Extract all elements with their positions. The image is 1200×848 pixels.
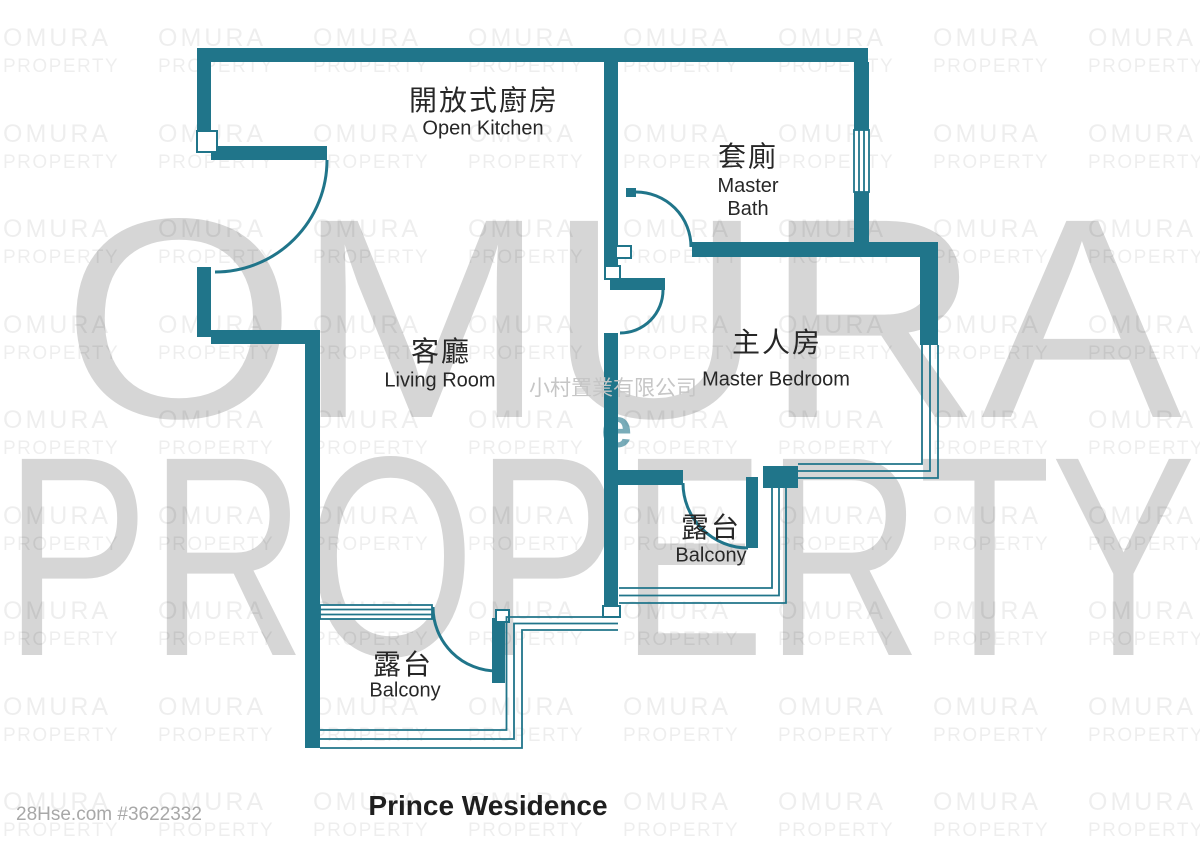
balcony-living-door-arc [433, 607, 497, 671]
living-room-label-cjk: 客廳 [411, 336, 471, 368]
floorplan-image: OMURAPROPERTYOMURAPROPERTYOMURAPROPERTYO… [0, 0, 1200, 848]
wall-entry-inner [211, 146, 327, 160]
listing-reference: 28Hse.com #3622332 [16, 804, 202, 826]
wall-bath-right-lower [854, 192, 869, 247]
hallway-jamb-1 [616, 246, 631, 258]
bath-door-arc [636, 192, 691, 247]
balcony-glass-line [320, 617, 618, 730]
wall-bath-door-stub [626, 188, 636, 197]
wall-left-upper [197, 48, 211, 134]
bath-window-frame [854, 130, 869, 192]
building-title: Prince Wesidence [368, 790, 607, 822]
bay-window-line [798, 345, 930, 471]
bedroom-door-arc [620, 290, 663, 333]
wall-balcony-bedroom-top [618, 470, 683, 485]
floorplan-drawing [0, 0, 1200, 848]
hallway-end-block [603, 606, 620, 617]
wall-bath-right-upper [854, 62, 869, 130]
wall-balcony-bedroom-stub [746, 477, 758, 548]
balcony-living-label-cjk: 露台 [373, 649, 433, 681]
kitchen-label-en: Open Kitchen [422, 118, 543, 141]
balcony-living-window-strip [320, 605, 432, 619]
balcony-bedroom-label-cjk: 露台 [681, 512, 741, 544]
wall-hallway-upper [604, 62, 618, 268]
balcony-bedroom-label-en: Balcony [675, 545, 746, 568]
bay-window-line [798, 345, 922, 464]
kitchen-label-cjk: 開放式廚房 [409, 85, 559, 117]
balcony-living-glass [320, 617, 618, 748]
bedroom-bay-window [798, 345, 938, 478]
wall-living-step [211, 330, 320, 344]
hallway-jamb-2 [605, 266, 620, 279]
wall-balcony-living-stub [492, 618, 505, 683]
balcony-glass-line [320, 624, 618, 740]
entry-door-hinge-block [197, 131, 217, 152]
wall-bedroom-right [920, 257, 938, 345]
bay-window-line [798, 345, 938, 478]
master-bedroom-label-cjk: 主人房 [732, 327, 822, 359]
doors [215, 160, 748, 671]
master-bath-label-en: Master Bath [698, 175, 798, 221]
master-bedroom-label-en: Master Bedroom [702, 369, 850, 392]
wall-bath-bedroom [692, 242, 938, 257]
wall-left-lower [197, 267, 211, 337]
master-bath-label-cjk: 套廁 [718, 141, 778, 173]
wall-west [305, 344, 320, 748]
entry-door-arc [215, 160, 327, 272]
teal-letter-watermark: e [601, 400, 632, 456]
balcony-living-label-en: Balcony [369, 680, 440, 703]
wall-bay-sill-block [763, 466, 798, 488]
living-room-label-en: Living Room [384, 370, 495, 393]
wall-top [200, 48, 868, 62]
bath-window [854, 130, 869, 192]
living-window-frame [320, 605, 432, 619]
